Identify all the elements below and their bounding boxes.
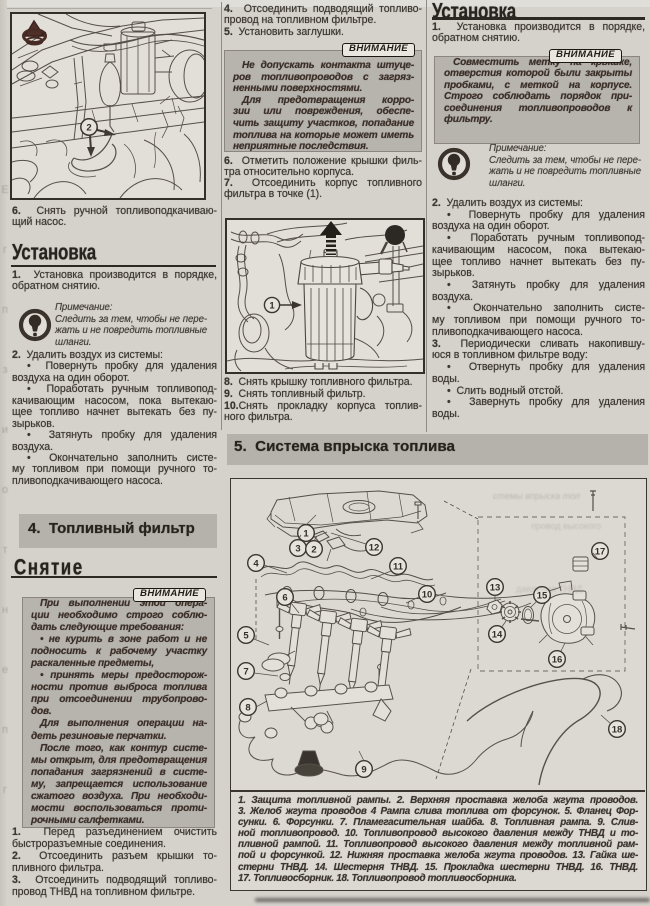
svg-text:9: 9 — [361, 765, 366, 776]
svg-text:4: 4 — [253, 559, 259, 570]
svg-text:17: 17 — [595, 547, 606, 558]
svg-text:14: 14 — [492, 630, 503, 641]
svg-text:18: 18 — [612, 725, 623, 736]
svg-text:10: 10 — [422, 590, 433, 601]
svg-text:1: 1 — [303, 529, 309, 540]
svg-text:7: 7 — [243, 667, 248, 678]
svg-text:2: 2 — [86, 123, 91, 134]
svg-text:16: 16 — [552, 655, 563, 666]
svg-text:12: 12 — [369, 543, 380, 554]
svg-text:2: 2 — [311, 545, 316, 556]
svg-text:11: 11 — [393, 562, 404, 573]
svg-text:3: 3 — [295, 544, 300, 555]
svg-text:6: 6 — [282, 593, 287, 604]
svg-text:5: 5 — [243, 631, 249, 642]
svg-text:13: 13 — [490, 583, 501, 594]
svg-text:8: 8 — [245, 703, 250, 714]
svg-text:1: 1 — [269, 301, 275, 312]
